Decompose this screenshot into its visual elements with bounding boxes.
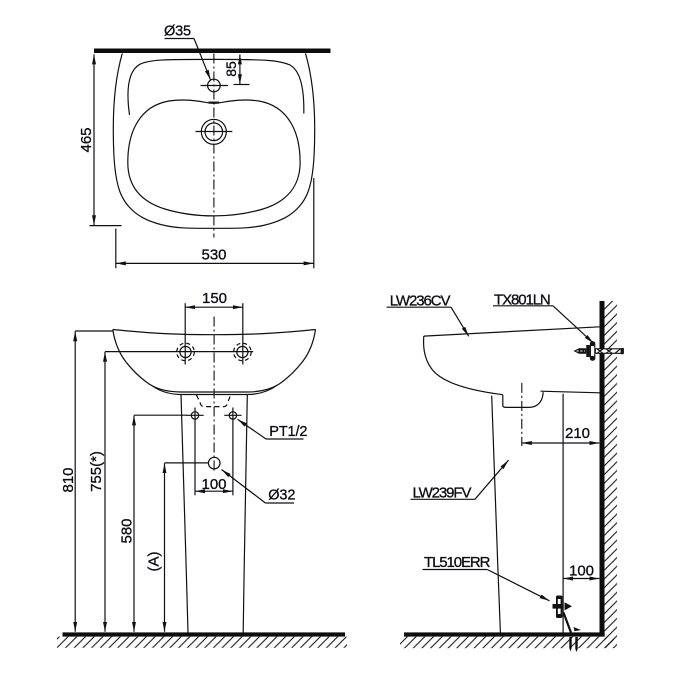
- svg-text:210: 210: [565, 425, 590, 442]
- svg-text:150: 150: [202, 290, 227, 307]
- svg-text:85: 85: [223, 61, 239, 77]
- svg-text:Ø35: Ø35: [164, 24, 191, 40]
- svg-text:PT1/2: PT1/2: [269, 424, 307, 440]
- svg-text:Ø32: Ø32: [268, 487, 295, 503]
- svg-text:530: 530: [201, 247, 226, 264]
- svg-text:TL510ERR: TL510ERR: [424, 554, 491, 571]
- svg-text:755(*): 755(*): [88, 451, 105, 492]
- svg-text:(A): (A): [146, 552, 163, 572]
- svg-text:580: 580: [119, 518, 136, 543]
- svg-text:465: 465: [78, 127, 95, 152]
- svg-text:100: 100: [569, 563, 594, 580]
- svg-text:810: 810: [60, 467, 77, 492]
- svg-text:100: 100: [201, 476, 226, 493]
